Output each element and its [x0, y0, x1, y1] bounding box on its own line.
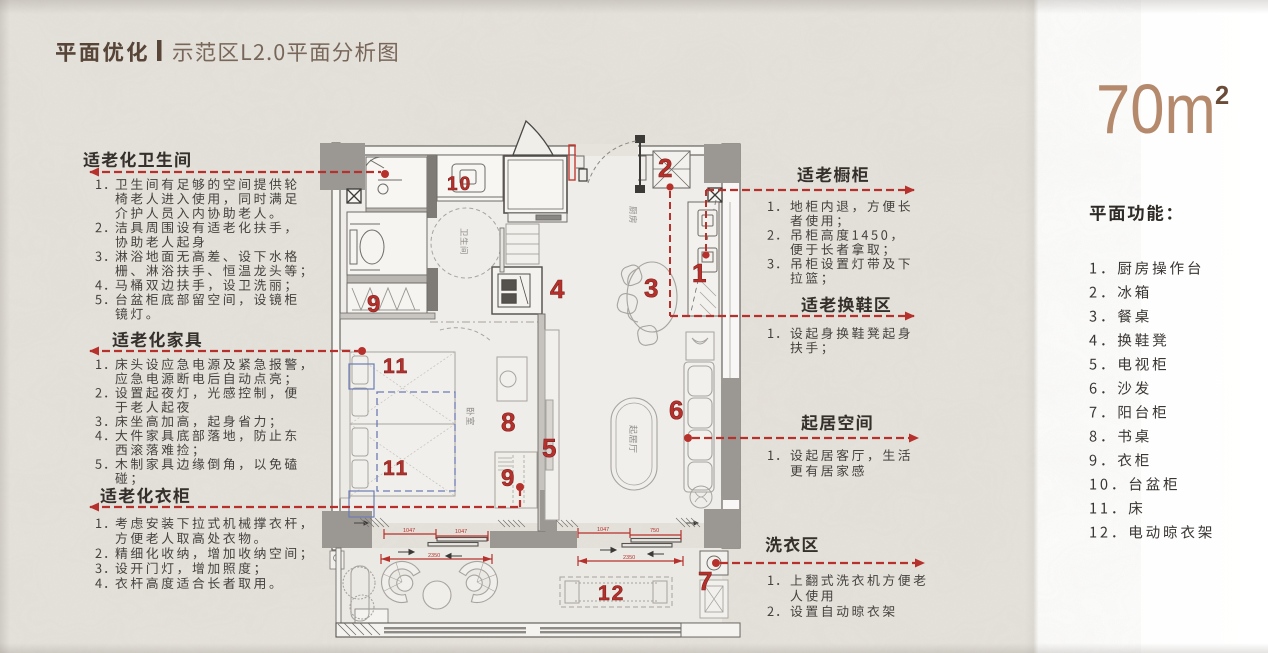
- svg-text:9: 9: [367, 291, 382, 318]
- svg-text:1047: 1047: [597, 527, 609, 533]
- svg-text:11: 11: [383, 457, 409, 480]
- svg-text:2350: 2350: [623, 555, 635, 561]
- svg-text:12: 12: [598, 582, 625, 605]
- svg-text:11: 11: [383, 355, 409, 378]
- svg-text:4: 4: [550, 274, 566, 304]
- svg-text:5: 5: [542, 433, 558, 463]
- svg-text:2: 2: [658, 153, 674, 183]
- svg-text:9: 9: [501, 465, 516, 492]
- svg-text:8: 8: [501, 407, 517, 437]
- svg-text:2: 2: [1215, 82, 1229, 110]
- svg-text:1047: 1047: [455, 529, 467, 535]
- svg-text:3: 3: [644, 273, 660, 303]
- svg-text:70m: 70m: [1096, 69, 1216, 148]
- svg-text:1047: 1047: [403, 528, 415, 534]
- svg-text:2350: 2350: [428, 553, 440, 559]
- svg-text:6: 6: [669, 395, 685, 425]
- svg-text:750: 750: [650, 528, 659, 534]
- svg-text:10: 10: [447, 174, 472, 195]
- svg-text:1: 1: [692, 258, 708, 288]
- svg-text:7: 7: [698, 566, 714, 596]
